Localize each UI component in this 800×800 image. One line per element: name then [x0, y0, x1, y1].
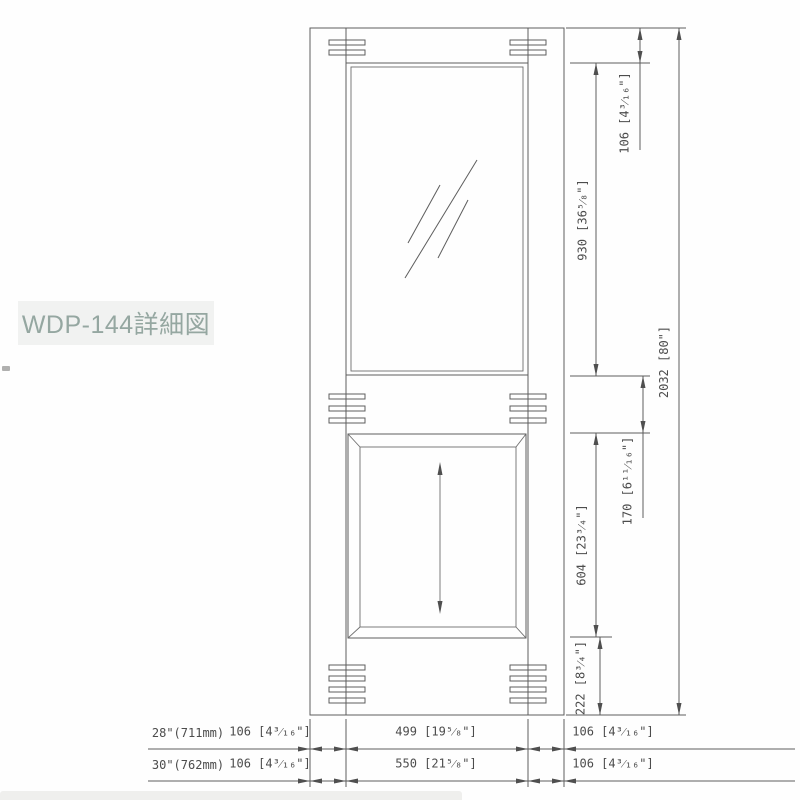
grain-direction-arrow-icon — [438, 462, 443, 614]
row2-door-size: 30"(762mm) — [152, 758, 224, 772]
row2-center-width: 550 [21⁵⁄₈"] — [395, 757, 476, 772]
row1-left-stile: 106 [4³⁄₁₆"] — [229, 725, 310, 740]
dim-label-bottom-rail: 222 [8³⁄₄"] — [574, 641, 589, 715]
dim-label-overall-height: 2032 [80"] — [657, 326, 671, 398]
row1-center-width: 499 [19⁵⁄₈"] — [395, 725, 476, 740]
row2-right-stile: 106 [4³⁄₁₆"] — [572, 757, 653, 772]
drawing-title-badge: WDP-144詳細図 — [18, 301, 214, 345]
door-technical-drawing — [0, 0, 800, 800]
drawing-title: WDP-144詳細図 — [22, 305, 210, 341]
dim-label-panel-opening: 604 [23³⁄₄"] — [575, 504, 590, 585]
drawing-canvas: WDP-144詳細図 106 [4³⁄₁₆"] 930 [36⁵⁄₈"] 203… — [0, 0, 800, 800]
dim-label-glass-opening: 930 [36⁵⁄₈"] — [576, 179, 591, 260]
glass-panel — [346, 63, 528, 375]
row1-door-size: 28"(711mm) — [152, 726, 224, 740]
raised-panel — [348, 434, 526, 638]
dowel-marks — [329, 40, 546, 703]
scan-artifact-strip — [0, 791, 462, 800]
dim-label-mid-rail: 170 [6¹¹⁄₁₆"] — [621, 437, 636, 526]
dim-label-top-rail: 106 [4³⁄₁₆"] — [618, 72, 633, 153]
scan-artifact-dot — [2, 366, 10, 371]
row2-left-stile: 106 [4³⁄₁₆"] — [229, 757, 310, 772]
glass-hatch-icon — [405, 160, 477, 278]
row1-right-stile: 106 [4³⁄₁₆"] — [572, 725, 653, 740]
